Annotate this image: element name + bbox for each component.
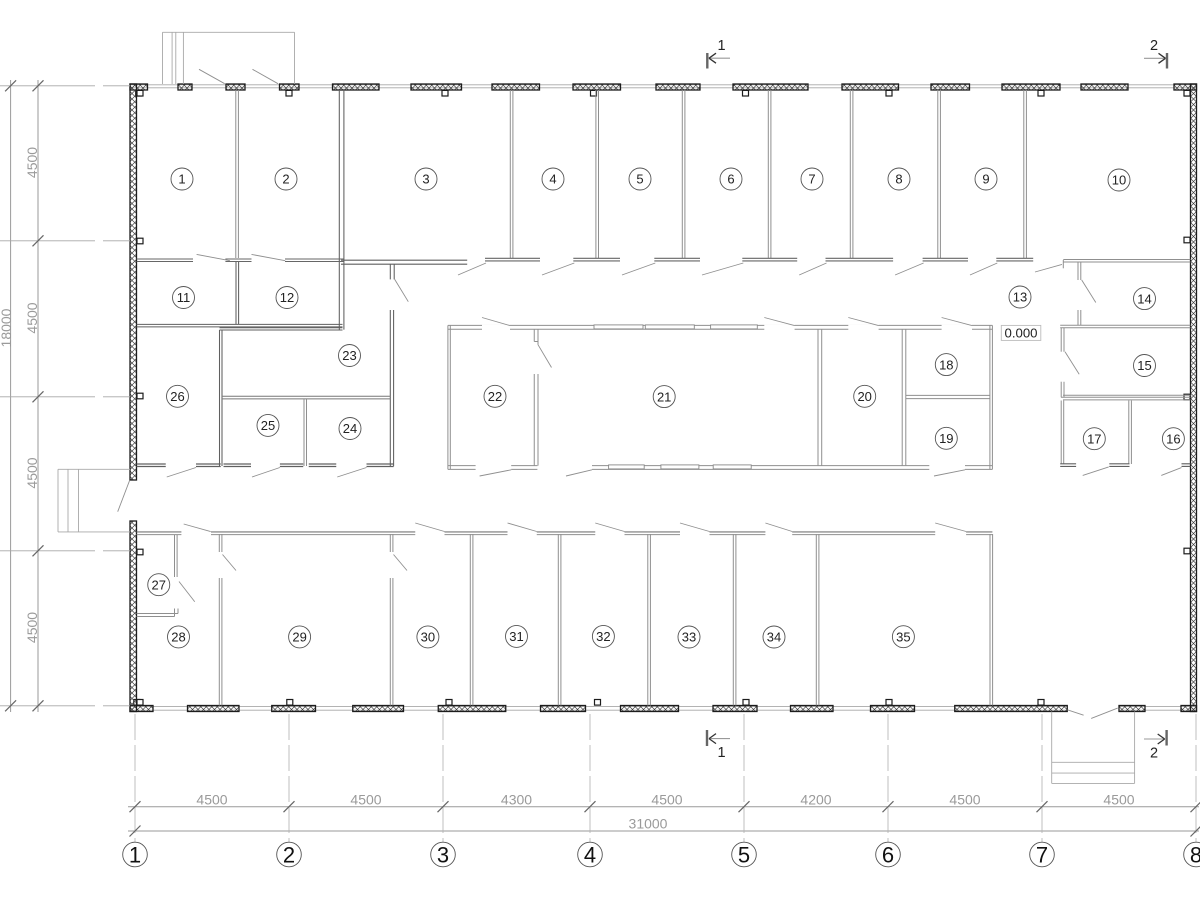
svg-text:6: 6 <box>882 842 894 867</box>
svg-text:12: 12 <box>280 290 294 305</box>
svg-text:1: 1 <box>718 745 726 761</box>
svg-text:9: 9 <box>982 172 989 187</box>
svg-text:8: 8 <box>895 172 902 187</box>
svg-text:4500: 4500 <box>24 147 40 178</box>
svg-text:2: 2 <box>1150 38 1158 54</box>
svg-text:21: 21 <box>657 389 671 404</box>
svg-text:10: 10 <box>1112 173 1126 188</box>
svg-text:33: 33 <box>682 630 696 645</box>
svg-text:4500: 4500 <box>24 302 40 333</box>
svg-text:2: 2 <box>283 842 295 867</box>
svg-text:2: 2 <box>1150 746 1158 762</box>
svg-text:1: 1 <box>178 172 185 187</box>
svg-text:17: 17 <box>1087 431 1101 446</box>
svg-text:7: 7 <box>808 172 815 187</box>
svg-text:4200: 4200 <box>800 792 831 808</box>
svg-text:8: 8 <box>1190 842 1200 867</box>
svg-text:7: 7 <box>1036 842 1048 867</box>
svg-text:20: 20 <box>857 389 871 404</box>
svg-text:1: 1 <box>717 38 725 54</box>
svg-text:16: 16 <box>1166 431 1180 446</box>
svg-text:23: 23 <box>342 348 356 363</box>
svg-text:1: 1 <box>129 842 141 867</box>
svg-text:15: 15 <box>1137 358 1151 373</box>
svg-text:27: 27 <box>152 577 166 592</box>
svg-text:18000: 18000 <box>0 308 14 347</box>
svg-text:5: 5 <box>738 842 750 867</box>
svg-text:18: 18 <box>939 357 953 372</box>
svg-text:2: 2 <box>282 172 289 187</box>
svg-text:25: 25 <box>261 418 275 433</box>
svg-text:24: 24 <box>343 421 357 436</box>
svg-text:3: 3 <box>437 842 449 867</box>
svg-text:28: 28 <box>171 630 185 645</box>
svg-text:30: 30 <box>421 630 435 645</box>
svg-text:35: 35 <box>896 629 910 644</box>
svg-text:4500: 4500 <box>196 792 227 808</box>
svg-text:32: 32 <box>596 629 610 644</box>
svg-text:4500: 4500 <box>651 792 682 808</box>
svg-text:5: 5 <box>636 172 643 187</box>
svg-text:26: 26 <box>170 389 184 404</box>
svg-text:0.000: 0.000 <box>1004 325 1037 340</box>
svg-text:4500: 4500 <box>1103 792 1134 808</box>
svg-text:11: 11 <box>177 290 191 305</box>
svg-text:4: 4 <box>584 842 596 867</box>
svg-text:4300: 4300 <box>501 792 532 808</box>
svg-text:4500: 4500 <box>949 792 980 808</box>
svg-text:29: 29 <box>292 630 306 645</box>
svg-text:4500: 4500 <box>24 457 40 488</box>
svg-text:31: 31 <box>509 629 523 644</box>
svg-text:6: 6 <box>727 172 734 187</box>
svg-text:13: 13 <box>1013 290 1027 305</box>
svg-text:4: 4 <box>549 172 556 187</box>
svg-text:31000: 31000 <box>629 815 668 831</box>
svg-text:3: 3 <box>422 172 429 187</box>
svg-text:19: 19 <box>939 431 953 446</box>
svg-text:14: 14 <box>1137 291 1151 306</box>
svg-text:4500: 4500 <box>350 792 381 808</box>
svg-text:22: 22 <box>488 389 502 404</box>
svg-text:4500: 4500 <box>24 612 40 643</box>
svg-text:34: 34 <box>767 630 781 645</box>
